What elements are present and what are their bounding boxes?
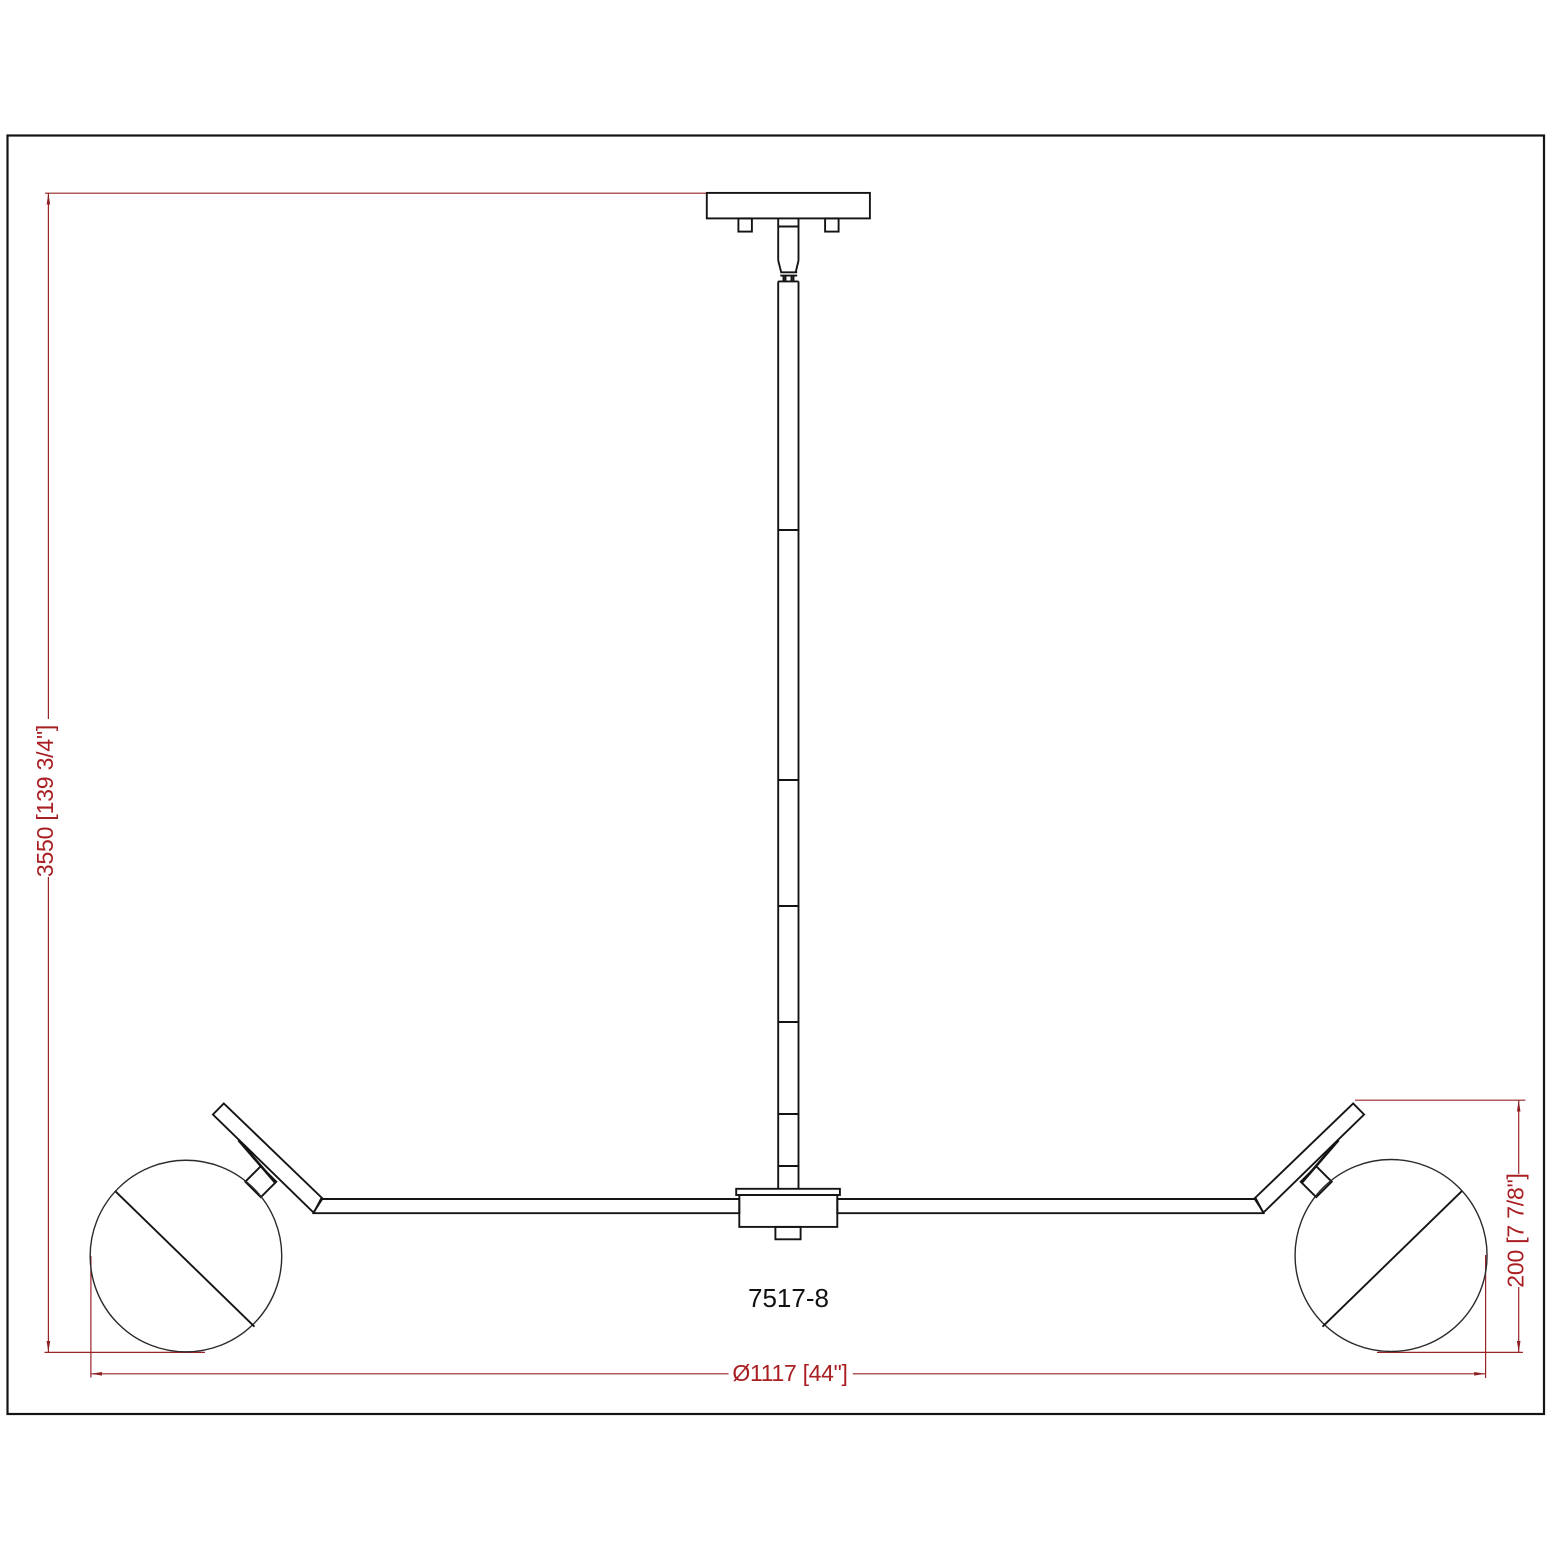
svg-text:3550 [139 3/4"]: 3550 [139 3/4"]: [32, 725, 58, 877]
svg-text:7517-8: 7517-8: [748, 1283, 829, 1313]
svg-text:Ø1117 [44"]: Ø1117 [44"]: [732, 1360, 847, 1386]
svg-text:200 [7 7/8"]: 200 [7 7/8"]: [1503, 1173, 1529, 1287]
